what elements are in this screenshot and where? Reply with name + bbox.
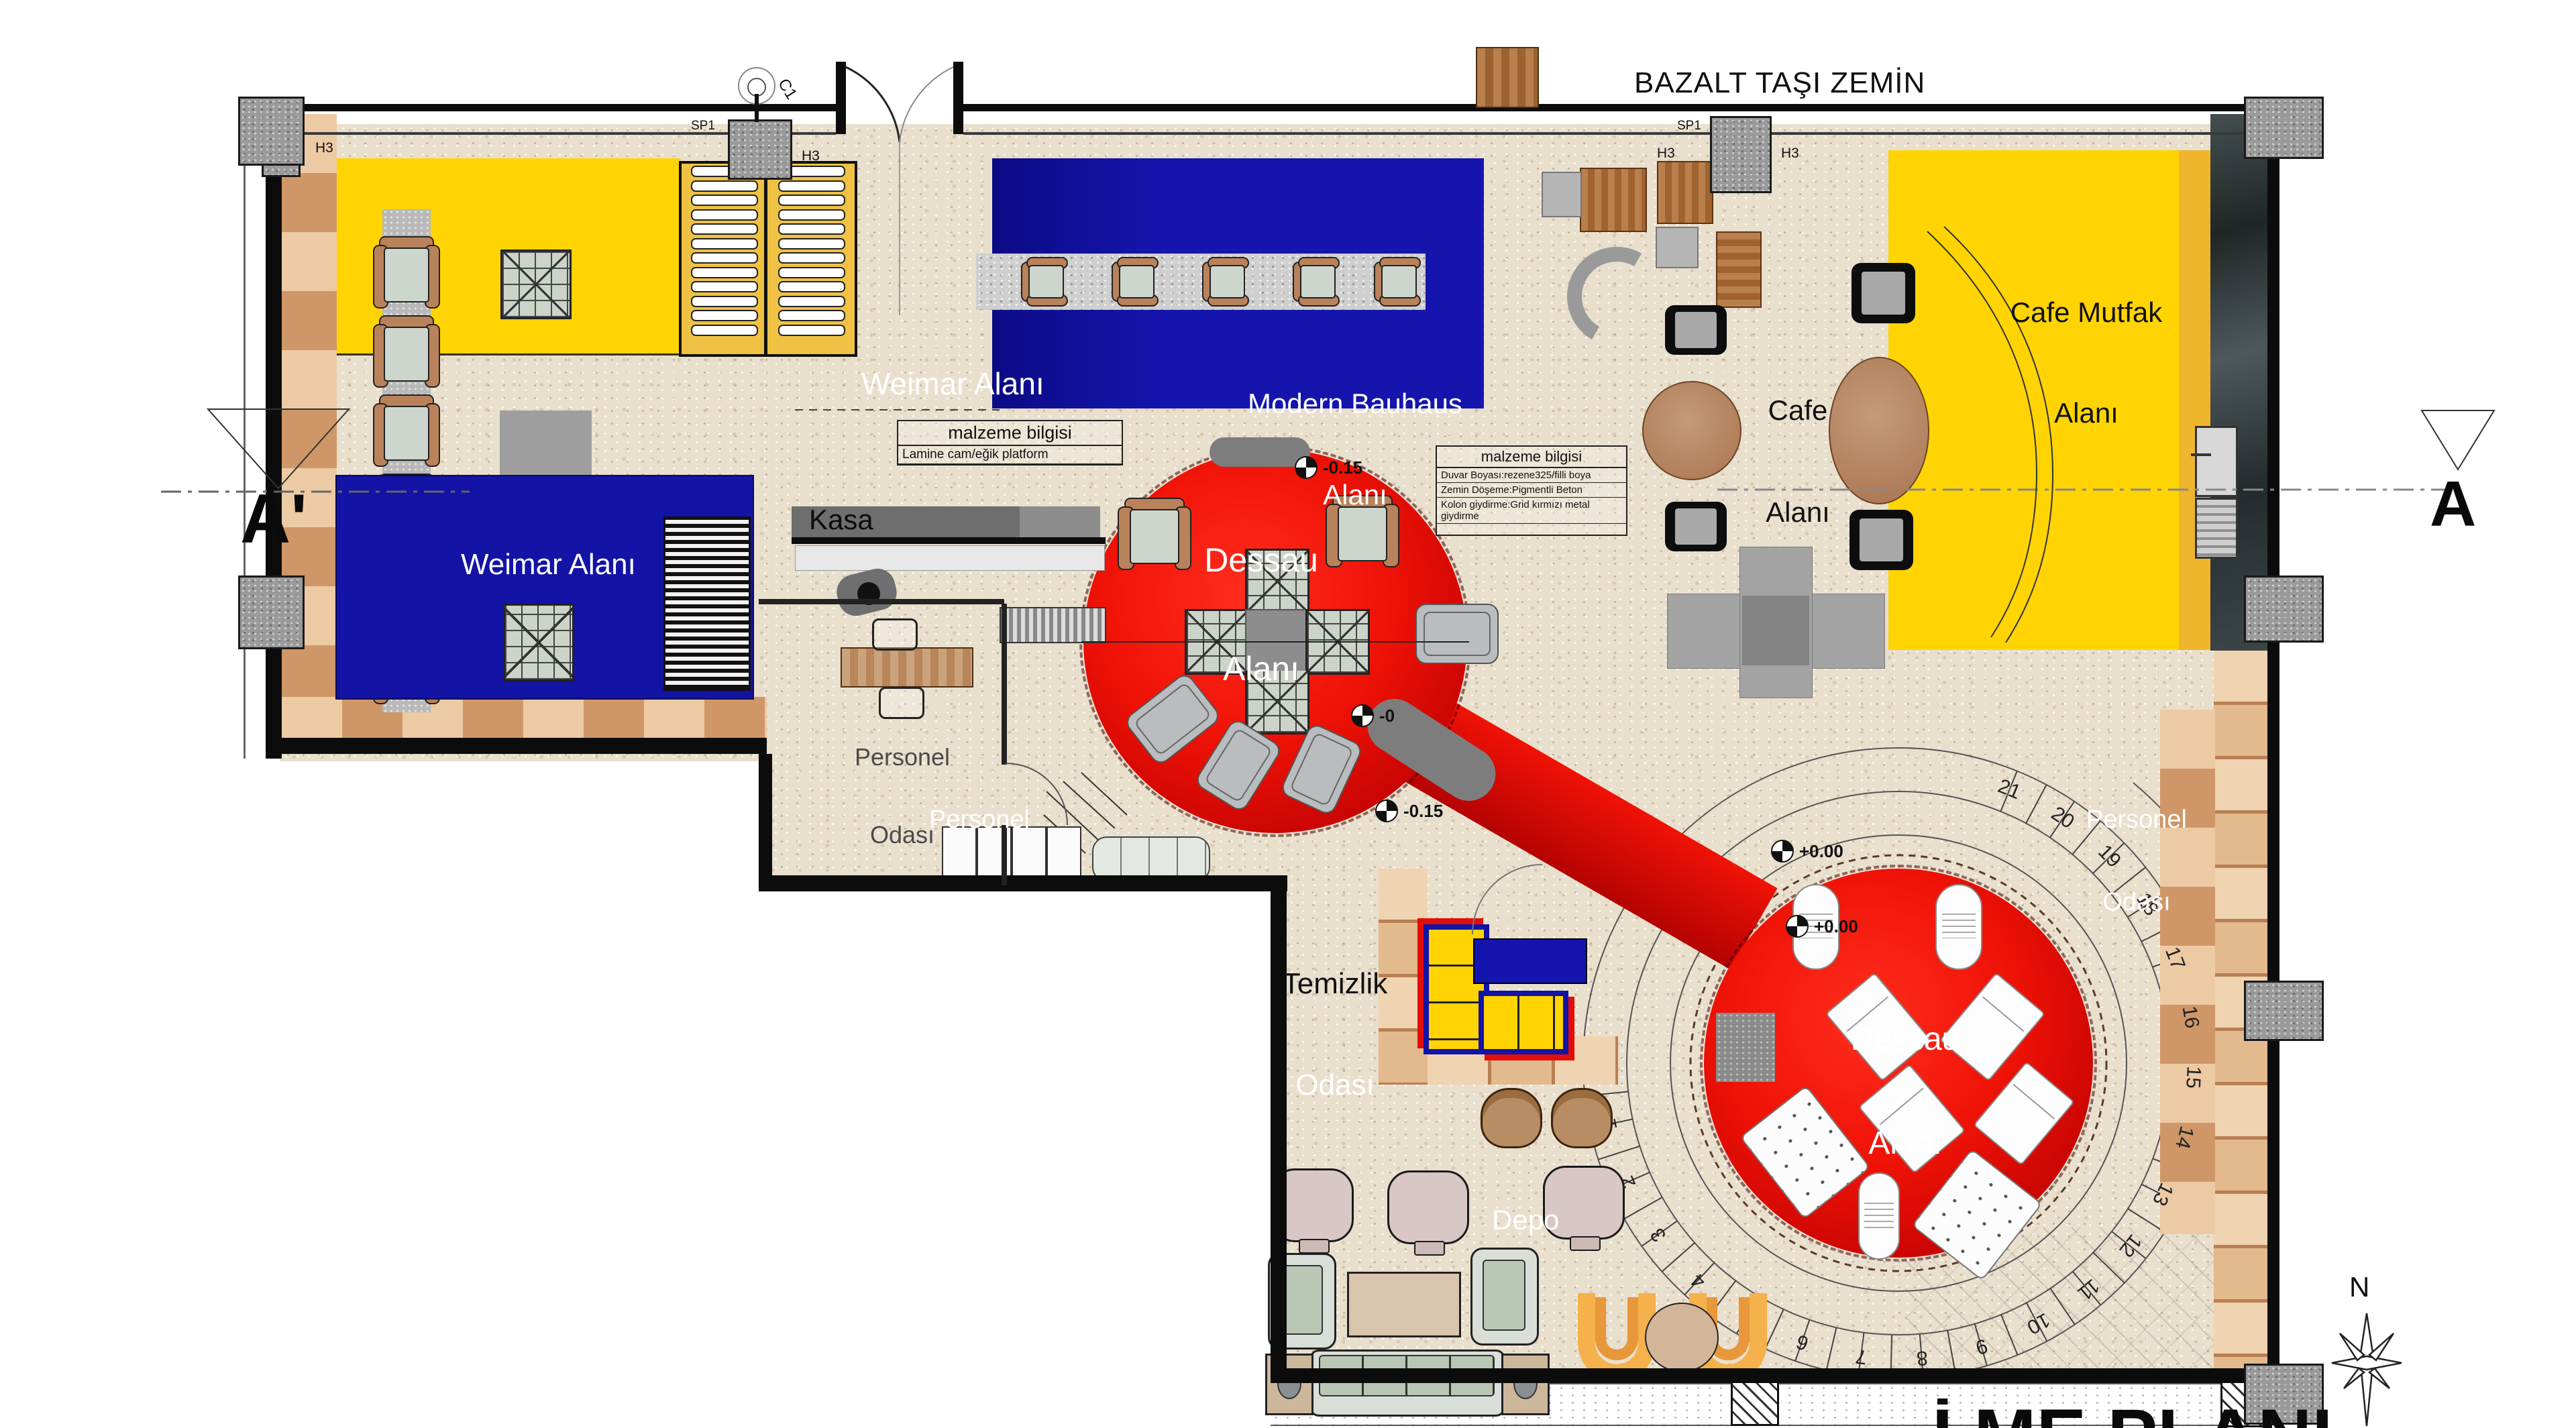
level-value: -0	[1379, 706, 1395, 726]
level-symbol	[1375, 800, 1398, 822]
level-value: +0.00	[1799, 841, 1843, 862]
label-h3-3: H3	[1657, 146, 1675, 162]
label-bazalt: BAZALT TAŞI ZEMİN	[1634, 67, 1925, 99]
label-weimar-entry: Weimar Alanı	[861, 368, 1044, 401]
bottom-title-clip: İ.ME PLANI	[1932, 1398, 2375, 1428]
label-temizlik-l1: Temizlik	[1268, 968, 1402, 1000]
label-kasa: Kasa	[809, 504, 873, 535]
material-table-2-row: Kolon giydirme:Grid kırmızı metal giydir…	[1437, 498, 1626, 524]
level-symbol	[1295, 456, 1318, 479]
level-marker-2: -0.15	[1375, 800, 1443, 822]
label-modern-l1: Modern Bauhaus	[1228, 388, 1483, 419]
label-h3-4: H3	[1781, 146, 1799, 162]
level-symbol	[1771, 840, 1794, 863]
material-table-2-row-empty	[1437, 524, 1626, 535]
section-marker-left: A'	[240, 482, 307, 557]
label-dessau2-l1: Dessau	[1811, 1022, 1999, 1057]
level-marker-1: -0	[1351, 704, 1395, 727]
label-mutfak-l1: Cafe Mutfak	[1966, 297, 2207, 327]
level-value: -0.15	[1403, 801, 1443, 822]
label-personel2-l2: Odası	[912, 889, 1046, 916]
label-personel3-l2: Odası	[2066, 889, 2207, 916]
label-weimar-blue: Weimar Alanı	[461, 549, 636, 581]
label-dessau1-l1: Dessau	[1167, 542, 1355, 578]
label-personel-2: Personel Odası	[912, 751, 1046, 971]
label-dessau2-l2: Alanı	[1811, 1126, 1999, 1161]
label-personel3-l1: Personel	[2066, 806, 2207, 834]
material-table-2-row: Duvar Boyası:rezene325/filli boya	[1437, 468, 1626, 483]
material-table-2-header: malzeme bilgisi	[1437, 447, 1626, 468]
label-dessau-2: Dessau Alanı	[1811, 952, 1999, 1231]
material-table-2-row: Zemin Döşeme:Pigmentli Beton	[1437, 483, 1626, 498]
floor-plan-canvas: 123456789101112131415161718192021	[0, 0, 2576, 1428]
label-mutfak: Cafe Mutfak Alanı	[1966, 236, 2207, 489]
label-cafe-l2: Alanı	[1744, 497, 1851, 527]
label-personel-3: Personel Odası	[2066, 751, 2207, 971]
label-h3-2: H3	[802, 149, 820, 164]
label-personel2-l1: Personel	[912, 806, 1046, 834]
label-cafe-l1: Cafe	[1744, 395, 1851, 425]
level-symbol	[1351, 704, 1374, 727]
level-marker-4: +0.00	[1786, 915, 1858, 938]
material-table-1-row: Lamine cam/eğik platform	[898, 446, 1122, 464]
bottom-title: İ.ME PLANI	[1932, 1398, 2332, 1428]
material-table-1-header: malzeme bilgisi	[898, 421, 1122, 446]
section-marker-right: A	[2430, 470, 2476, 539]
material-table-2: malzeme bilgisi Duvar Boyası:rezene325/f…	[1436, 445, 1627, 536]
level-value: -0.15	[1323, 457, 1362, 478]
label-temizlik-l2: Odası	[1268, 1069, 1402, 1101]
label-h3-1: H3	[315, 141, 333, 156]
label-mutfak-l2: Alanı	[1966, 398, 2207, 428]
label-dessau1-l2: Alanı	[1167, 651, 1355, 687]
label-sp-2: SP1	[1677, 119, 1701, 133]
label-sp-1: SP1	[691, 119, 715, 133]
material-table-1: malzeme bilgisi Lamine cam/eğik platform	[897, 420, 1123, 465]
level-symbol	[1786, 915, 1809, 938]
level-marker-3: +0.00	[1771, 840, 1843, 863]
label-dessau-1: Dessau Alanı	[1167, 470, 1355, 759]
level-value: +0.00	[1814, 916, 1858, 937]
label-depo: Depo	[1492, 1205, 1559, 1235]
level-marker-0: -0.15	[1295, 456, 1362, 479]
label-cafe: Cafe Alanı	[1744, 334, 1851, 588]
north-label: N	[2349, 1272, 2369, 1302]
label-temizlik: Temizlik Odası	[1268, 904, 1402, 1164]
